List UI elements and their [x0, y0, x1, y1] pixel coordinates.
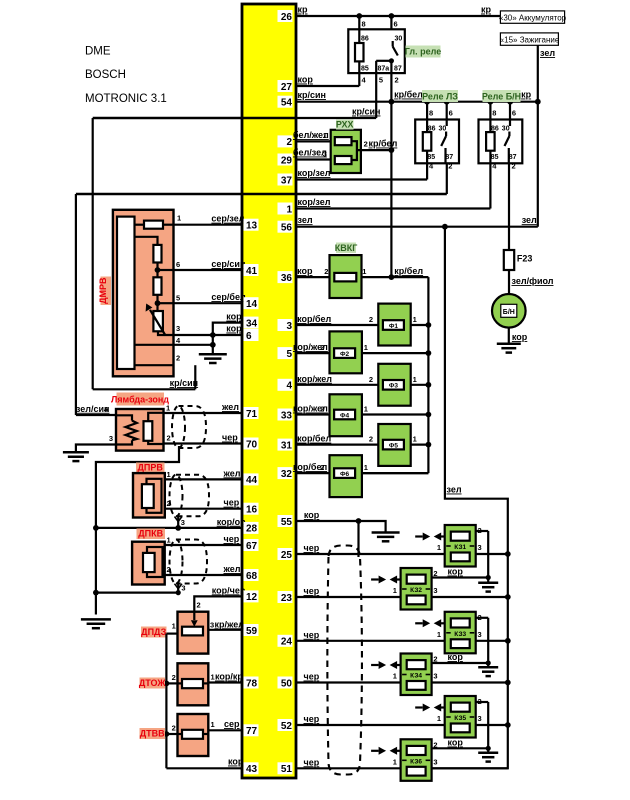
- svg-text:КЗ4: КЗ4: [410, 673, 422, 680]
- svg-text:54: 54: [281, 98, 293, 109]
- svg-text:2: 2: [172, 723, 176, 732]
- svg-text:44: 44: [246, 475, 258, 486]
- svg-text:чер: чер: [222, 433, 238, 443]
- svg-text:2: 2: [369, 435, 373, 444]
- svg-text:3: 3: [181, 584, 185, 593]
- svg-text:Гл. реле: Гл. реле: [405, 47, 441, 57]
- svg-text:1: 1: [211, 720, 215, 729]
- svg-text:1: 1: [286, 204, 292, 215]
- svg-text:5: 5: [286, 349, 292, 360]
- svg-text:«15» Зажигание: «15» Зажигание: [500, 35, 560, 44]
- svg-text:2: 2: [448, 162, 452, 171]
- svg-text:Реле ЛЗ: Реле ЛЗ: [422, 91, 458, 101]
- svg-text:6: 6: [246, 331, 252, 342]
- svg-text:8: 8: [429, 109, 433, 118]
- svg-text:52: 52: [281, 721, 293, 732]
- svg-text:Ф3: Ф3: [389, 383, 399, 390]
- svg-text:77: 77: [246, 726, 258, 737]
- svg-text:кр/жел: кр/жел: [215, 619, 245, 629]
- svg-text:5: 5: [176, 294, 180, 303]
- svg-text:2: 2: [167, 434, 171, 443]
- svg-text:КЗ5: КЗ5: [454, 715, 466, 722]
- svg-text:37: 37: [281, 175, 293, 186]
- svg-text:6: 6: [176, 260, 180, 269]
- svg-text:ДПРВ: ДПРВ: [138, 463, 164, 473]
- svg-text:70: 70: [246, 439, 258, 450]
- svg-text:зел: зел: [447, 485, 462, 495]
- svg-text:сер/син: сер/син: [211, 259, 245, 269]
- svg-text:1: 1: [393, 757, 397, 766]
- svg-text:кор/жел: кор/жел: [293, 404, 328, 414]
- svg-text:сер: сер: [224, 719, 240, 729]
- svg-text:зел: зел: [540, 48, 555, 58]
- svg-text:51: 51: [281, 764, 293, 775]
- svg-text:78: 78: [246, 678, 258, 689]
- svg-text:3: 3: [181, 518, 185, 527]
- svg-text:КЗ1: КЗ1: [454, 544, 466, 551]
- svg-text:34: 34: [246, 318, 258, 329]
- svg-text:MOTRONIC 3.1: MOTRONIC 3.1: [85, 93, 167, 105]
- svg-text:BOSCH: BOSCH: [85, 69, 126, 81]
- svg-text:КЗ3: КЗ3: [454, 631, 466, 638]
- svg-text:1: 1: [393, 672, 397, 681]
- svg-text:85: 85: [361, 66, 369, 73]
- svg-text:кор/чер: кор/чер: [212, 585, 246, 595]
- svg-text:3: 3: [478, 543, 482, 552]
- svg-text:55: 55: [281, 517, 293, 528]
- svg-text:кр: кр: [521, 90, 532, 100]
- svg-text:кор: кор: [512, 332, 528, 342]
- svg-text:кор: кор: [298, 75, 314, 85]
- svg-text:41: 41: [246, 266, 258, 277]
- svg-text:ДТВВ: ДТВВ: [140, 729, 165, 739]
- svg-text:кр: кр: [481, 5, 492, 15]
- svg-text:3: 3: [478, 630, 482, 639]
- svg-text:кор: кор: [448, 567, 464, 577]
- svg-text:Ф1: Ф1: [389, 323, 399, 330]
- svg-text:Ф5: Ф5: [389, 442, 399, 449]
- svg-text:12: 12: [246, 592, 258, 603]
- svg-text:71: 71: [246, 409, 258, 420]
- svg-text:2: 2: [369, 315, 373, 324]
- svg-text:68: 68: [246, 571, 258, 582]
- svg-text:6: 6: [449, 109, 453, 118]
- svg-text:кор: кор: [304, 510, 320, 520]
- svg-text:23: 23: [281, 593, 293, 604]
- svg-text:1: 1: [364, 343, 368, 352]
- svg-text:зел: зел: [298, 215, 313, 225]
- svg-text:чер: чер: [304, 543, 320, 553]
- svg-text:85: 85: [491, 154, 499, 161]
- svg-text:кор: кор: [448, 738, 464, 748]
- svg-text:ДПКВ: ДПКВ: [138, 529, 163, 539]
- svg-text:3: 3: [286, 321, 292, 332]
- svg-text:кор/ор: кор/ор: [217, 517, 246, 527]
- svg-text:кор/жел: кор/жел: [297, 374, 332, 384]
- svg-text:59: 59: [246, 626, 258, 637]
- svg-text:кр: кр: [298, 5, 309, 15]
- svg-text:5: 5: [379, 76, 383, 85]
- svg-text:кор/бел: кор/бел: [297, 434, 331, 444]
- svg-text:3: 3: [433, 757, 437, 766]
- svg-text:Ф2: Ф2: [340, 351, 350, 358]
- svg-text:кор/зел: кор/зел: [298, 168, 331, 178]
- svg-text:кр/син: кр/син: [170, 378, 198, 388]
- svg-text:3: 3: [323, 150, 327, 159]
- svg-text:1: 1: [167, 536, 171, 545]
- svg-text:кр/син: кр/син: [352, 107, 380, 117]
- svg-text:чер: чер: [224, 498, 240, 508]
- svg-text:1: 1: [437, 543, 441, 552]
- svg-text:56: 56: [281, 223, 293, 234]
- svg-text:Ф6: Ф6: [340, 471, 350, 478]
- svg-text:2: 2: [512, 162, 516, 171]
- svg-text:86: 86: [361, 36, 369, 43]
- svg-text:4: 4: [286, 381, 292, 392]
- svg-text:«30» Аккумулятор: «30» Аккумулятор: [499, 13, 567, 22]
- svg-text:13: 13: [246, 221, 258, 232]
- svg-text:Реле Б/Н: Реле Б/Н: [482, 91, 521, 101]
- svg-text:кор: кор: [448, 652, 464, 662]
- svg-text:25: 25: [281, 550, 293, 561]
- svg-text:кор: кор: [228, 757, 244, 767]
- svg-text:1: 1: [413, 315, 417, 324]
- svg-text:1: 1: [413, 375, 417, 384]
- svg-text:50: 50: [281, 678, 293, 689]
- svg-text:87: 87: [445, 154, 453, 161]
- svg-text:3: 3: [478, 714, 482, 723]
- svg-text:14: 14: [246, 299, 258, 310]
- svg-text:2: 2: [395, 76, 399, 85]
- svg-text:Ф4: Ф4: [340, 412, 350, 419]
- svg-text:кор: кор: [226, 324, 242, 334]
- svg-text:43: 43: [246, 764, 258, 775]
- svg-text:чер: чер: [304, 714, 320, 724]
- svg-text:чер: чер: [304, 630, 320, 640]
- svg-text:чер: чер: [304, 672, 320, 682]
- svg-text:1: 1: [437, 630, 441, 639]
- svg-text:2: 2: [286, 137, 292, 148]
- svg-text:30: 30: [439, 126, 447, 133]
- svg-text:8: 8: [362, 20, 366, 29]
- svg-text:1: 1: [323, 131, 327, 140]
- svg-text:ДТОЖ: ДТОЖ: [139, 678, 167, 688]
- svg-text:85: 85: [427, 154, 435, 161]
- svg-text:2: 2: [176, 353, 180, 362]
- svg-text:3: 3: [176, 324, 180, 333]
- svg-text:6: 6: [394, 20, 398, 29]
- svg-text:33: 33: [281, 410, 293, 421]
- svg-text:8: 8: [492, 109, 496, 118]
- svg-text:1: 1: [413, 435, 417, 444]
- svg-text:кор/зел: кор/зел: [298, 197, 331, 207]
- svg-text:3: 3: [433, 586, 437, 595]
- svg-text:жел: жел: [223, 564, 241, 574]
- svg-text:31: 31: [281, 440, 293, 451]
- svg-text:кор/жел: кор/жел: [293, 342, 328, 352]
- svg-text:КЗ2: КЗ2: [410, 587, 422, 594]
- svg-text:кр/син: кр/син: [298, 90, 326, 100]
- svg-text:2: 2: [369, 375, 373, 384]
- svg-text:87: 87: [509, 154, 517, 161]
- svg-text:2: 2: [324, 267, 328, 276]
- svg-text:РХХ: РХХ: [336, 120, 354, 130]
- svg-text:30: 30: [502, 126, 510, 133]
- svg-text:чер: чер: [224, 534, 240, 544]
- svg-text:кор/бел: кор/бел: [297, 314, 331, 324]
- svg-text:1: 1: [177, 214, 181, 223]
- svg-text:1: 1: [364, 463, 368, 472]
- svg-text:кор: кор: [226, 312, 242, 322]
- svg-text:1: 1: [364, 405, 368, 414]
- svg-text:29: 29: [281, 155, 293, 166]
- svg-text:87а: 87а: [378, 66, 390, 73]
- svg-text:чер: чер: [304, 757, 320, 767]
- svg-text:67: 67: [246, 541, 258, 552]
- svg-text:16: 16: [246, 505, 258, 516]
- svg-text:28: 28: [246, 524, 258, 535]
- svg-text:кр/бел: кр/бел: [394, 266, 423, 276]
- svg-text:сер/зел: сер/зел: [211, 214, 244, 224]
- svg-text:ДПДЗ: ДПДЗ: [141, 627, 166, 637]
- svg-text:зел: зел: [522, 215, 537, 225]
- svg-text:сер/бел: сер/бел: [211, 292, 246, 302]
- svg-text:1: 1: [437, 714, 441, 723]
- svg-text:ДМРВ: ДМРВ: [98, 277, 108, 304]
- svg-text:1: 1: [167, 470, 171, 479]
- svg-text:2: 2: [172, 673, 176, 682]
- svg-text:1: 1: [172, 622, 176, 631]
- svg-text:36: 36: [281, 273, 293, 284]
- svg-text:30: 30: [395, 36, 403, 43]
- svg-text:3: 3: [433, 672, 437, 681]
- svg-text:32: 32: [281, 469, 293, 480]
- svg-text:Б/Н: Б/Н: [503, 309, 515, 316]
- svg-text:КВКГ: КВКГ: [335, 243, 358, 253]
- svg-text:КЗ6: КЗ6: [410, 758, 422, 765]
- svg-text:DME: DME: [85, 46, 111, 58]
- svg-text:кор/бел: кор/бел: [293, 462, 327, 472]
- svg-text:86: 86: [491, 126, 499, 133]
- svg-text:26: 26: [281, 12, 293, 23]
- svg-text:F23: F23: [517, 254, 533, 264]
- svg-text:жел: жел: [221, 402, 239, 412]
- svg-text:2: 2: [197, 601, 201, 610]
- svg-text:6: 6: [512, 109, 516, 118]
- svg-text:зел/фиол: зел/фиол: [512, 276, 554, 286]
- svg-text:3: 3: [109, 434, 113, 443]
- svg-text:кр/бел: кр/бел: [394, 90, 423, 100]
- svg-text:87: 87: [394, 66, 402, 73]
- svg-text:86: 86: [428, 126, 436, 133]
- svg-text:27: 27: [281, 82, 293, 93]
- svg-text:кор: кор: [297, 266, 313, 276]
- svg-text:2: 2: [364, 140, 368, 149]
- svg-text:чер: чер: [304, 586, 320, 596]
- svg-text:кор/кр: кор/кр: [215, 672, 243, 682]
- svg-text:1: 1: [362, 267, 366, 276]
- svg-text:жел: жел: [223, 468, 241, 478]
- svg-text:Лямбда-зонд: Лямбда-зонд: [111, 394, 169, 404]
- svg-text:24: 24: [281, 637, 293, 648]
- svg-text:кр/бел: кр/бел: [369, 139, 398, 149]
- svg-text:1: 1: [166, 404, 170, 413]
- svg-text:1: 1: [393, 586, 397, 595]
